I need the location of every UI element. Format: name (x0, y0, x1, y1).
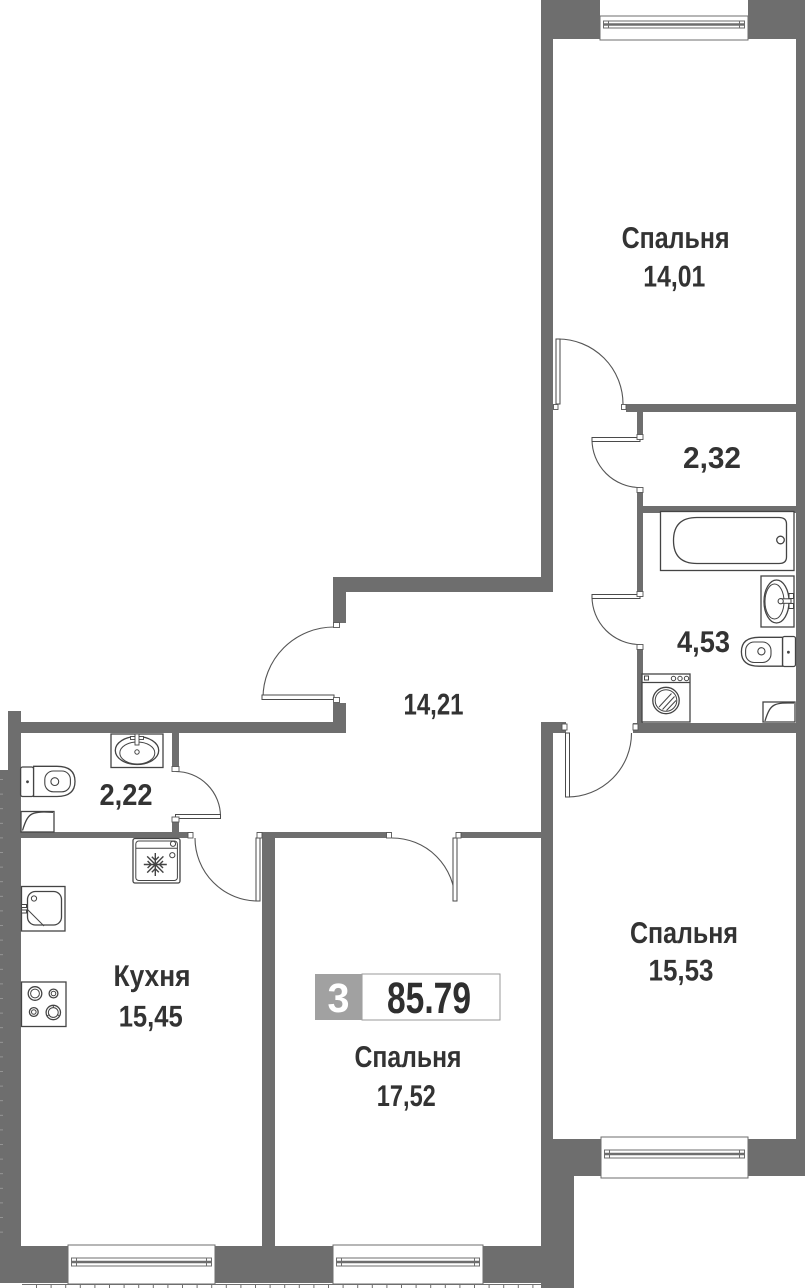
svg-text:2,22: 2,22 (100, 779, 153, 812)
svg-text:17,52: 17,52 (377, 1080, 436, 1113)
svg-text:15,53: 15,53 (649, 955, 714, 988)
svg-text:14,01: 14,01 (643, 261, 705, 294)
svg-text:3: 3 (328, 975, 350, 1021)
svg-text:4,53: 4,53 (677, 626, 730, 659)
svg-text:Кухня: Кухня (114, 960, 191, 993)
svg-text:2,32: 2,32 (683, 442, 741, 475)
svg-text:14,21: 14,21 (404, 689, 464, 722)
svg-text:Спальня: Спальня (355, 1041, 462, 1074)
svg-text:Спальня: Спальня (630, 917, 738, 950)
svg-text:Спальня: Спальня (622, 222, 730, 255)
svg-text:15,45: 15,45 (119, 1001, 183, 1034)
svg-text:85.79: 85.79 (387, 974, 471, 1023)
